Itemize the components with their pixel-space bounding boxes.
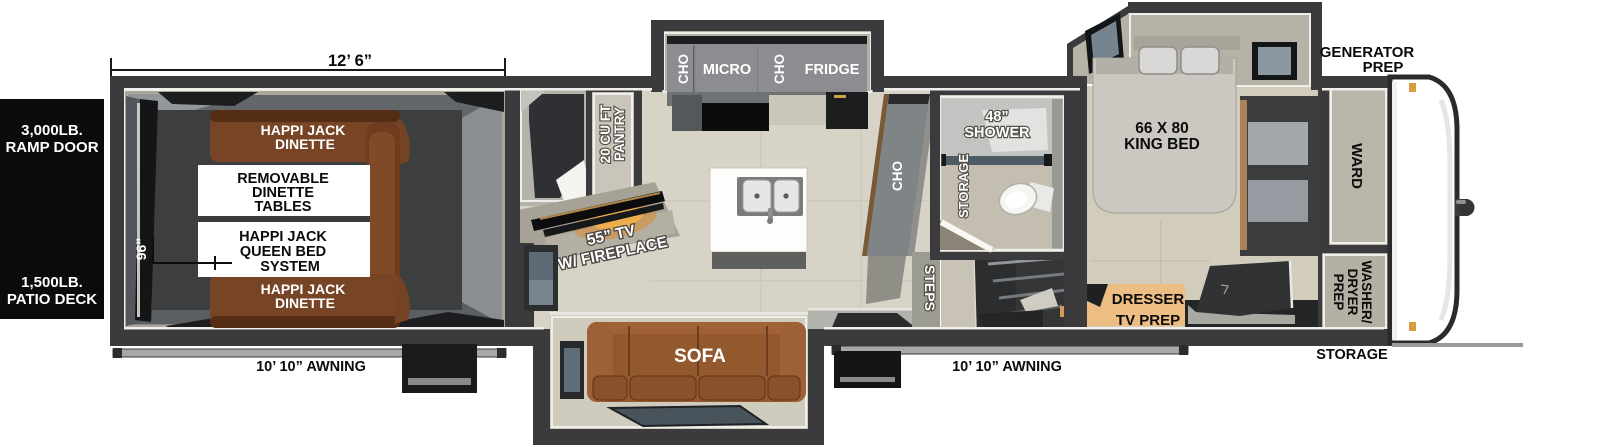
svg-text:PREP: PREP [1331,274,1346,311]
svg-text:RAMP DOOR: RAMP DOOR [5,139,98,156]
svg-text:FRIDGE: FRIDGE [805,62,860,78]
svg-text:1,500LB.: 1,500LB. [21,274,83,291]
svg-text:96”: 96” [133,238,149,261]
svg-text:KING BED: KING BED [1124,136,1200,153]
svg-text:STORAGE: STORAGE [1316,347,1388,363]
svg-text:HAPPI JACK: HAPPI JACK [239,229,327,245]
svg-text:12’ 6”: 12’ 6” [328,52,372,70]
svg-text:QUEEN BED: QUEEN BED [240,244,326,260]
svg-text:CHO: CHO [676,54,691,84]
svg-text:PANTRY: PANTRY [612,107,627,161]
svg-text:SOFA: SOFA [674,346,726,367]
svg-text:DINETTE: DINETTE [275,295,335,311]
svg-text:10’ 10” AWNING: 10’ 10” AWNING [256,359,366,375]
svg-text:WARD: WARD [1348,143,1365,189]
svg-text:PATIO DECK: PATIO DECK [7,291,97,308]
svg-text:DRESSER: DRESSER [1112,291,1185,308]
svg-text:20 CU FT: 20 CU FT [598,104,613,163]
svg-text:CHO: CHO [890,161,905,191]
svg-text:STEPS: STEPS [922,265,938,311]
svg-text:3,000LB.: 3,000LB. [21,122,83,139]
svg-text:STORAGE: STORAGE [956,154,971,218]
svg-text:TV PREP: TV PREP [1116,312,1180,329]
svg-text:TABLES: TABLES [255,199,312,215]
svg-text:66 X 80: 66 X 80 [1135,120,1188,137]
svg-text:SYSTEM: SYSTEM [260,259,320,275]
svg-text:PREP: PREP [1363,59,1404,76]
svg-text:SHOWER: SHOWER [964,125,1030,141]
svg-text:DRYER: DRYER [1345,269,1360,316]
svg-text:WASHER/: WASHER/ [1359,260,1374,323]
svg-text:MICRO: MICRO [703,62,751,78]
svg-text:48”: 48” [985,109,1008,125]
svg-text:DINETTE: DINETTE [275,136,335,152]
svg-text:10’ 10” AWNING: 10’ 10” AWNING [952,359,1062,375]
svg-text:CHO: CHO [772,54,787,84]
